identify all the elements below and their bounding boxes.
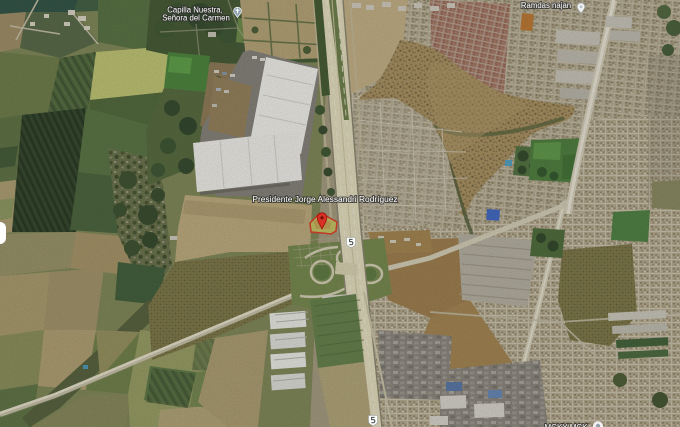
svg-text:Señora del Carmen: Señora del Carmen (162, 14, 230, 23)
svg-text:Presidente Jorge Alessandri Ro: Presidente Jorge Alessandri Rodríguez (252, 194, 397, 204)
svg-text:Ramdas najan: Ramdas najan (521, 1, 571, 10)
svg-text:MCKY MCK: MCKY MCK (545, 423, 589, 427)
